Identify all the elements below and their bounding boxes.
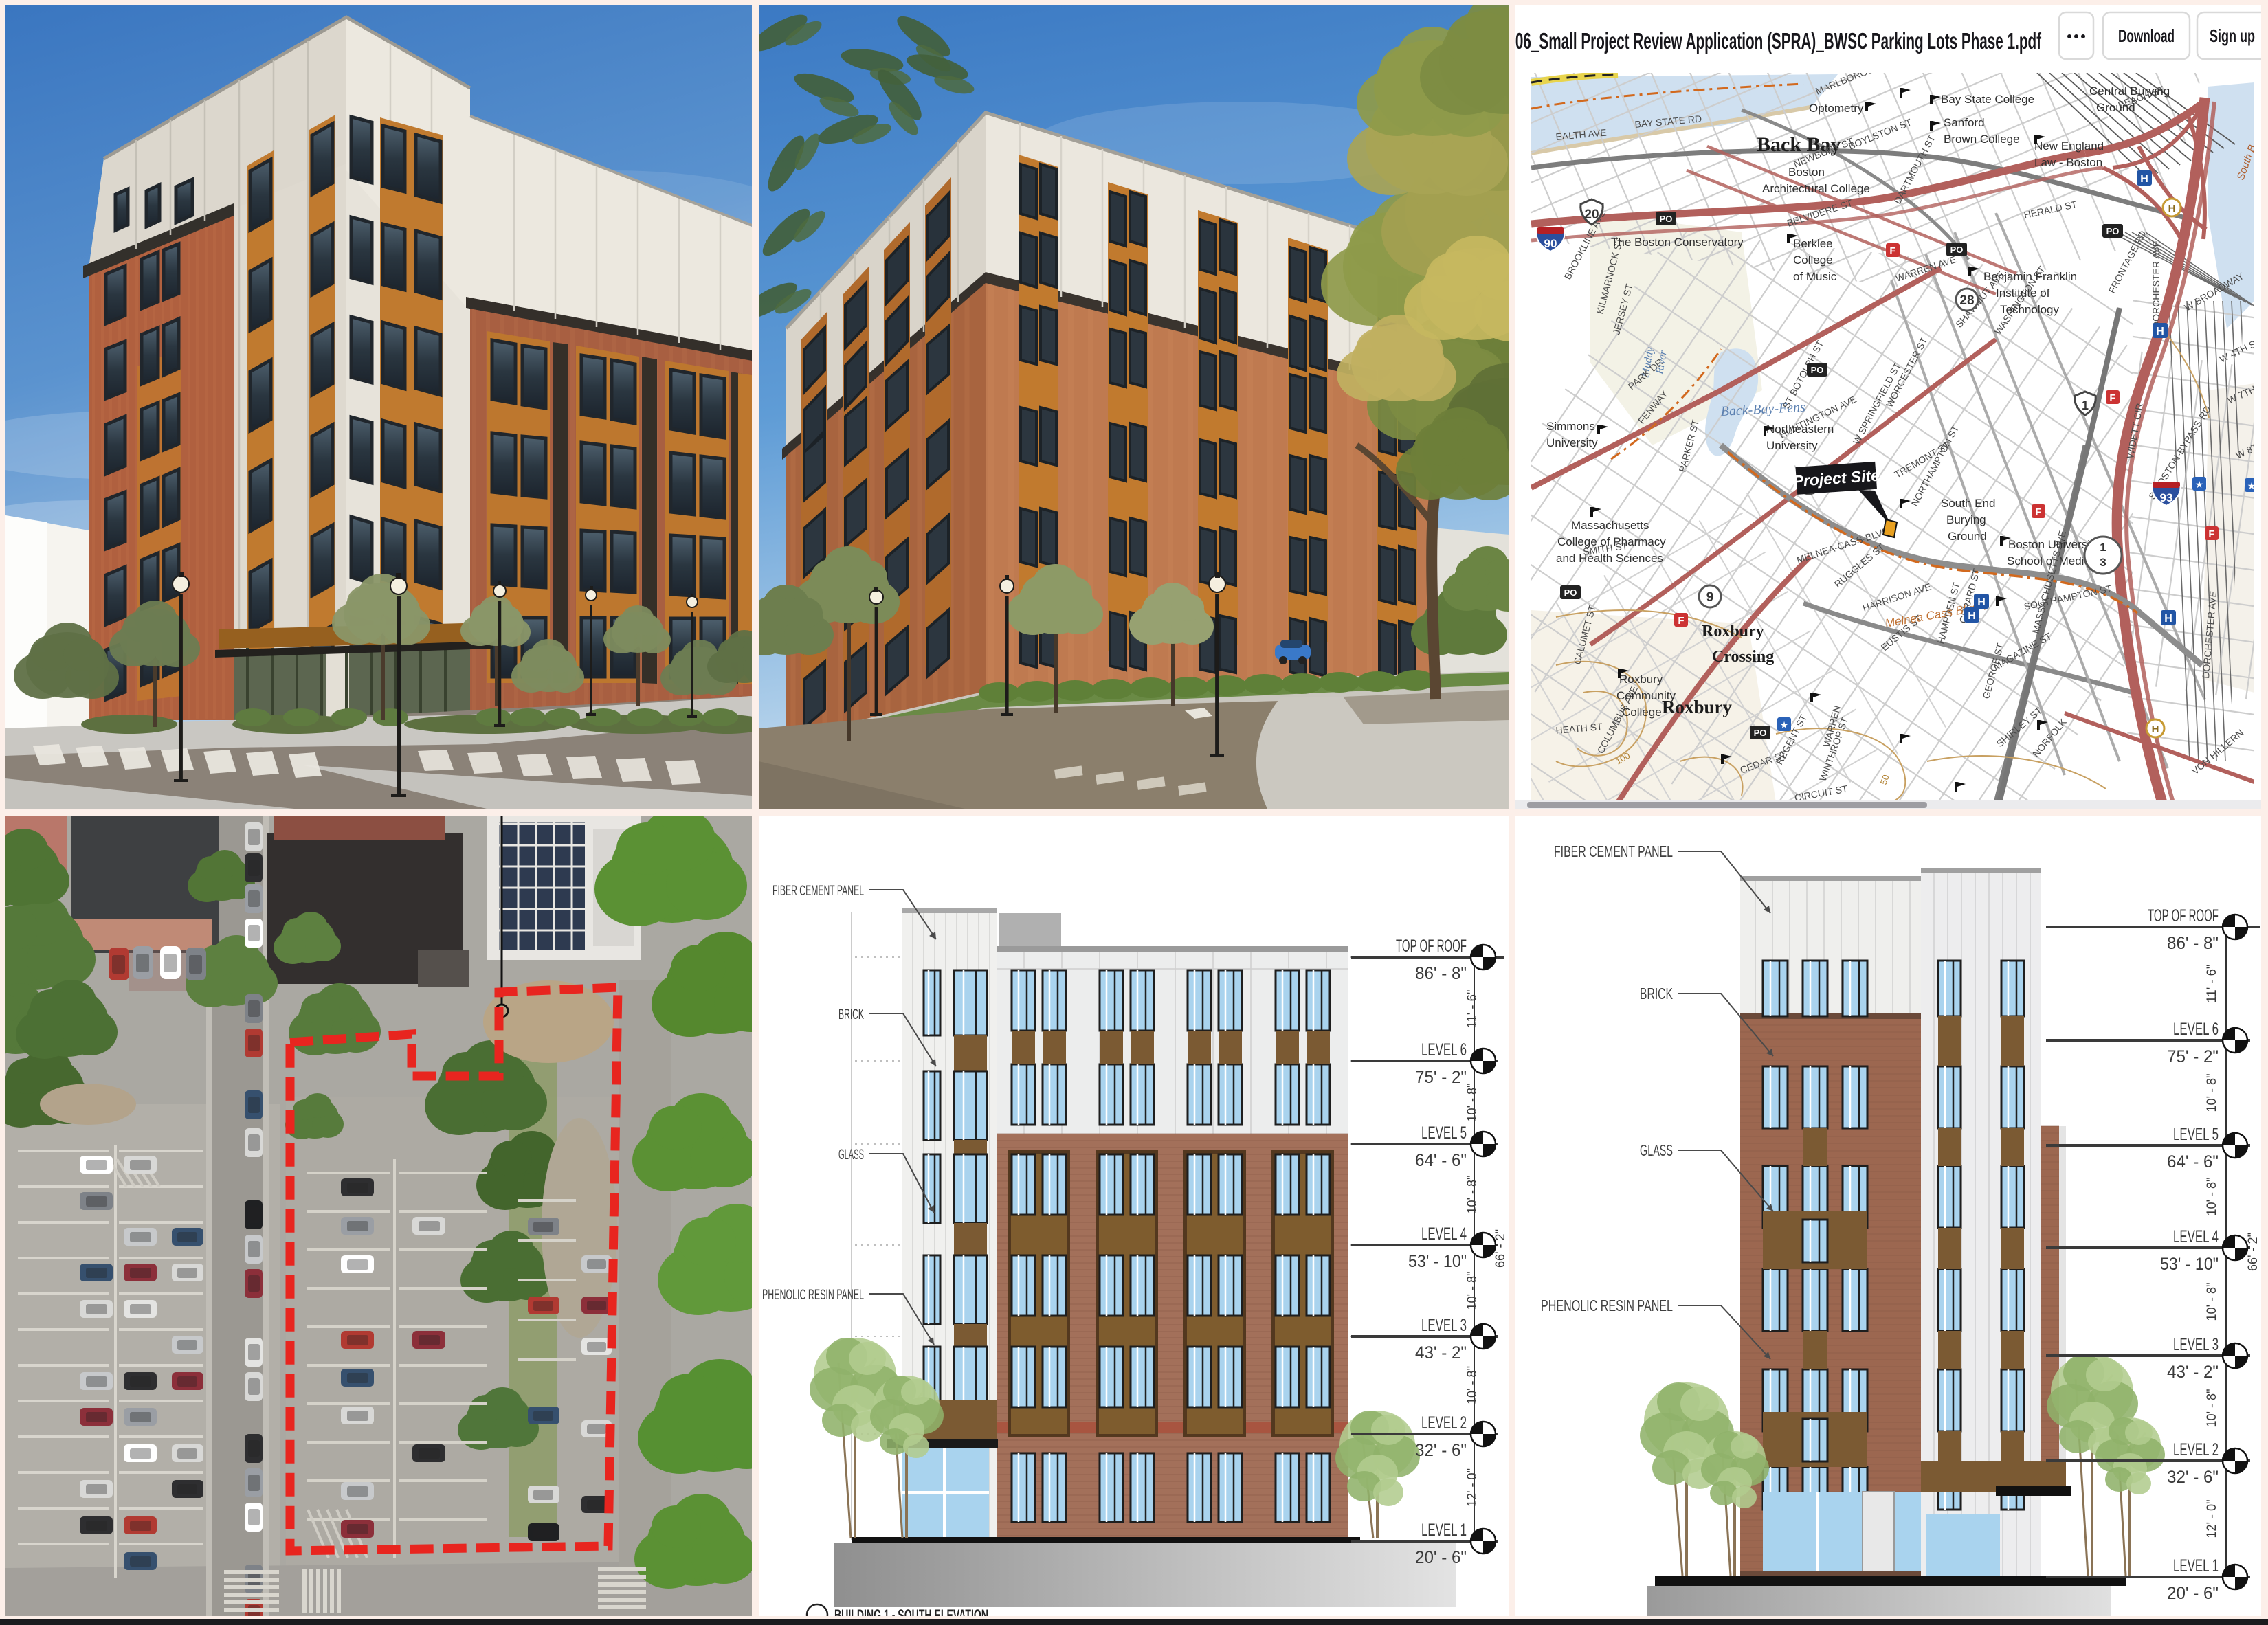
- svg-text:TOP OF ROOF: TOP OF ROOF: [2148, 906, 2219, 926]
- svg-text:10' - 8": 10' - 8": [1465, 1176, 1480, 1214]
- svg-text:66' - 2": 66' - 2": [2246, 1233, 2260, 1271]
- svg-text:53' - 10": 53' - 10": [2160, 1255, 2219, 1274]
- svg-text:9: 9: [1706, 590, 1714, 605]
- svg-text:Northeastern: Northeastern: [1766, 423, 1834, 436]
- svg-text:43' - 2": 43' - 2": [1415, 1343, 1467, 1363]
- svg-text:Sign up: Sign up: [2210, 25, 2255, 46]
- svg-text:Roxbury: Roxbury: [1619, 673, 1663, 686]
- svg-text:LEVEL 1: LEVEL 1: [1421, 1521, 1467, 1540]
- svg-text:66' - 2": 66' - 2": [1493, 1229, 1508, 1268]
- svg-text:10' - 8": 10' - 8": [1465, 1084, 1480, 1122]
- svg-text:LEVEL 5: LEVEL 5: [1421, 1123, 1467, 1143]
- svg-text:PO: PO: [1564, 587, 1577, 598]
- svg-text:75' - 2": 75' - 2": [1415, 1068, 1467, 1087]
- svg-text:LEVEL 3: LEVEL 3: [1421, 1316, 1467, 1335]
- svg-text:PO: PO: [1811, 365, 1824, 375]
- svg-text:of Music: of Music: [1793, 270, 1837, 283]
- svg-text:12' - 0": 12' - 0": [1465, 1468, 1480, 1507]
- svg-text:Optometry: Optometry: [1809, 102, 1864, 115]
- svg-text:43' - 2": 43' - 2": [2167, 1363, 2219, 1382]
- svg-text:★: ★: [1780, 719, 1789, 730]
- svg-text:Download: Download: [2118, 25, 2175, 46]
- svg-text:South End: South End: [1941, 497, 1995, 510]
- svg-text:University: University: [1766, 439, 1818, 452]
- svg-text:20' - 6": 20' - 6": [2167, 1584, 2219, 1603]
- svg-text:Simmons: Simmons: [1546, 420, 1595, 433]
- svg-text:10' - 8": 10' - 8": [1465, 1366, 1480, 1404]
- svg-text:H: H: [1977, 596, 1986, 608]
- svg-text:F: F: [2208, 528, 2214, 540]
- svg-text:10' - 8": 10' - 8": [1465, 1272, 1480, 1310]
- svg-text:H: H: [2140, 173, 2148, 185]
- svg-text:LEVEL 3: LEVEL 3: [2173, 1335, 2219, 1354]
- svg-text:LEVEL 6: LEVEL 6: [2173, 1020, 2219, 1039]
- svg-text:BUILDING 1 - SOUTH ELEVATION: BUILDING 1 - SOUTH ELEVATION: [834, 1606, 988, 1616]
- svg-text:Architectural College: Architectural College: [1762, 182, 1870, 195]
- svg-text:Ground: Ground: [2096, 101, 2135, 114]
- svg-text:FIBER CEMENT PANEL: FIBER CEMENT PANEL: [1554, 842, 1673, 860]
- svg-text:32' - 6": 32' - 6": [2167, 1468, 2219, 1487]
- svg-text:PO: PO: [2106, 226, 2120, 236]
- svg-text:LEVEL 4: LEVEL 4: [1421, 1224, 1467, 1244]
- svg-text:Benjamin Franklin: Benjamin Franklin: [1983, 270, 2077, 283]
- svg-text:Sanford: Sanford: [1944, 116, 1985, 129]
- svg-text:28: 28: [1959, 293, 1974, 308]
- svg-text:1: 1: [2082, 399, 2089, 412]
- svg-text:F: F: [2109, 392, 2115, 404]
- svg-text:Technology: Technology: [2000, 303, 2060, 316]
- svg-text:LEVEL 4: LEVEL 4: [2173, 1227, 2219, 1246]
- svg-text:FIBER CEMENT PANEL: FIBER CEMENT PANEL: [772, 883, 864, 899]
- svg-text:PHENOLIC RESIN PANEL: PHENOLIC RESIN PANEL: [1541, 1297, 1673, 1314]
- svg-text:Ground: Ground: [1948, 530, 1987, 543]
- svg-text:H: H: [2152, 724, 2159, 735]
- svg-text:Bay State College: Bay State College: [1941, 93, 2034, 106]
- svg-text:86' - 8": 86' - 8": [1415, 964, 1467, 983]
- svg-text:10' - 8": 10' - 8": [2205, 1283, 2219, 1321]
- svg-text:10' - 8": 10' - 8": [2205, 1178, 2219, 1216]
- svg-text:Berklee: Berklee: [1793, 237, 1833, 250]
- svg-text:20' - 6": 20' - 6": [1415, 1548, 1467, 1567]
- svg-text:LEVEL 2: LEVEL 2: [2173, 1440, 2219, 1459]
- svg-text:GLASS: GLASS: [1640, 1141, 1673, 1159]
- svg-text:PHENOLIC RESIN PANEL: PHENOLIC RESIN PANEL: [762, 1287, 864, 1303]
- svg-text:Boston: Boston: [1788, 166, 1825, 179]
- svg-text:Law - Boston: Law - Boston: [2034, 156, 2102, 169]
- svg-text:GLASS: GLASS: [838, 1147, 864, 1163]
- svg-text:86' - 8": 86' - 8": [2167, 934, 2219, 953]
- svg-text:Crossing: Crossing: [1712, 648, 1774, 666]
- svg-text:DORCHESTER AVE: DORCHESTER AVE: [2150, 240, 2161, 328]
- svg-text:LEVEL 6: LEVEL 6: [1421, 1040, 1467, 1060]
- svg-text:PO: PO: [1660, 214, 1673, 224]
- svg-text:H: H: [2164, 613, 2172, 625]
- svg-text:93: 93: [2160, 491, 2173, 504]
- svg-text:H: H: [1968, 610, 1976, 622]
- svg-text:H: H: [2168, 203, 2176, 214]
- svg-text:F: F: [1889, 245, 1895, 257]
- svg-text:-06_Small Project Review Appli: -06_Small Project Review Application (SP…: [1515, 28, 2042, 54]
- svg-text:New England: New England: [2034, 139, 2104, 153]
- svg-text:Community: Community: [1616, 689, 1676, 702]
- svg-text:11' - 6": 11' - 6": [1465, 990, 1480, 1029]
- svg-text:LEVEL 1: LEVEL 1: [2173, 1556, 2219, 1576]
- svg-text:The Boston Conservatory: The Boston Conservatory: [1611, 236, 1744, 249]
- svg-text:75' - 2": 75' - 2": [2167, 1047, 2219, 1066]
- svg-text:LEVEL 2: LEVEL 2: [1421, 1413, 1467, 1433]
- svg-text:BRICK: BRICK: [838, 1007, 864, 1022]
- svg-text:PO: PO: [1754, 728, 1767, 738]
- svg-text:53' - 10": 53' - 10": [1408, 1252, 1467, 1271]
- svg-text:10' - 8": 10' - 8": [2205, 1389, 2219, 1428]
- svg-text:College: College: [1622, 706, 1662, 719]
- svg-text:Burying: Burying: [1946, 513, 1986, 526]
- svg-text:TOP OF ROOF: TOP OF ROOF: [1396, 937, 1467, 956]
- svg-text:Roxbury: Roxbury: [1702, 623, 1764, 640]
- svg-text:College of Pharmacy: College of Pharmacy: [1557, 535, 1666, 548]
- svg-text:3: 3: [2100, 556, 2106, 569]
- svg-text:University: University: [1546, 436, 1598, 449]
- svg-text:PO: PO: [1950, 245, 1964, 255]
- svg-text:F: F: [2035, 506, 2041, 518]
- svg-text:90: 90: [1544, 237, 1557, 250]
- svg-text:LEVEL 5: LEVEL 5: [2173, 1125, 2219, 1144]
- svg-text:F: F: [1678, 615, 1684, 627]
- svg-text:64' - 6": 64' - 6": [2167, 1152, 2219, 1172]
- svg-text:10' - 8": 10' - 8": [2205, 1074, 2219, 1112]
- svg-text:11' - 6": 11' - 6": [2205, 965, 2219, 1003]
- svg-text:★: ★: [2195, 479, 2204, 490]
- svg-text:20: 20: [1584, 208, 1599, 222]
- svg-text:H: H: [2156, 326, 2164, 337]
- svg-text:College: College: [1793, 254, 1833, 267]
- svg-text:32' - 6": 32' - 6": [1415, 1441, 1467, 1460]
- svg-text:64' - 6": 64' - 6": [1415, 1151, 1467, 1170]
- svg-text:BRICK: BRICK: [1640, 985, 1673, 1002]
- svg-text:Central Burying: Central Burying: [2089, 85, 2170, 98]
- svg-text:Brown College: Brown College: [1944, 133, 2020, 146]
- svg-text:1: 1: [2100, 541, 2106, 554]
- svg-text:Institute of: Institute of: [1996, 287, 2050, 300]
- svg-text:12' - 0": 12' - 0": [2205, 1500, 2219, 1538]
- svg-text:Massachusetts: Massachusetts: [1571, 519, 1649, 532]
- svg-text:and Health Sciences: and Health Sciences: [1556, 552, 1663, 565]
